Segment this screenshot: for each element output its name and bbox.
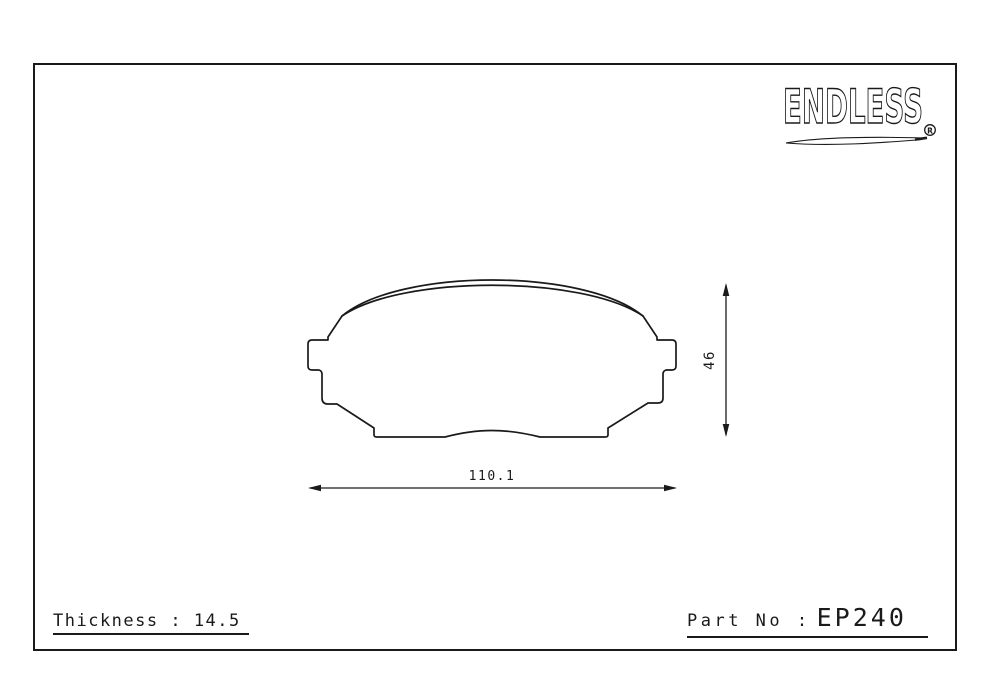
part-no-label: Part No :: [687, 606, 811, 636]
part-no-value: EP240: [817, 603, 907, 633]
part-no: Part No : EP240: [687, 603, 928, 638]
width-arrow-left-icon: [308, 485, 321, 492]
drawing-sheet: ENDLESS R 110.1 46: [0, 0, 991, 700]
width-dimension-value: 110.1: [469, 469, 516, 484]
height-arrow-top-icon: [723, 283, 730, 296]
height-arrow-bottom-icon: [723, 424, 730, 437]
pad-drawing: 110.1 46: [0, 0, 991, 700]
height-dimension-value: 46: [702, 350, 718, 370]
width-arrow-right-icon: [664, 485, 677, 492]
width-dimension: 110.1: [308, 469, 677, 491]
height-dimension: 46: [702, 283, 729, 437]
brake-pad-outline: [308, 280, 676, 437]
brake-pad-inner-arc-line: [342, 285, 643, 316]
thickness-label: Thickness : 14.5: [53, 610, 249, 635]
